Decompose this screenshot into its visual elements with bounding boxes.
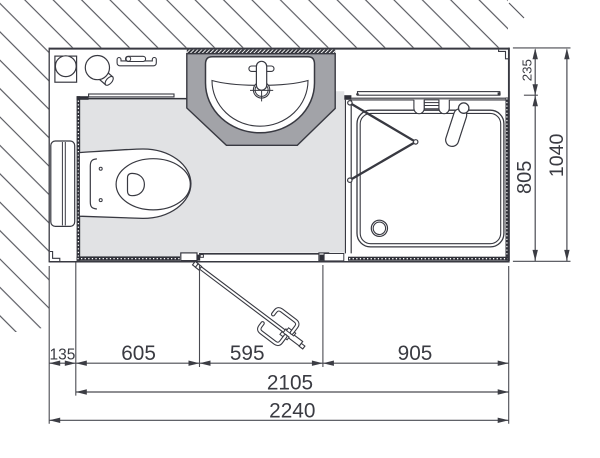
svg-text:235: 235 (519, 59, 534, 81)
svg-text:595: 595 (230, 342, 265, 365)
svg-text:1040: 1040 (546, 134, 568, 178)
svg-text:905: 905 (398, 342, 433, 365)
svg-text:805: 805 (514, 161, 536, 194)
svg-text:2240: 2240 (269, 399, 315, 422)
svg-text:135: 135 (49, 347, 75, 364)
svg-text:605: 605 (121, 342, 156, 365)
svg-text:2105: 2105 (267, 371, 313, 394)
